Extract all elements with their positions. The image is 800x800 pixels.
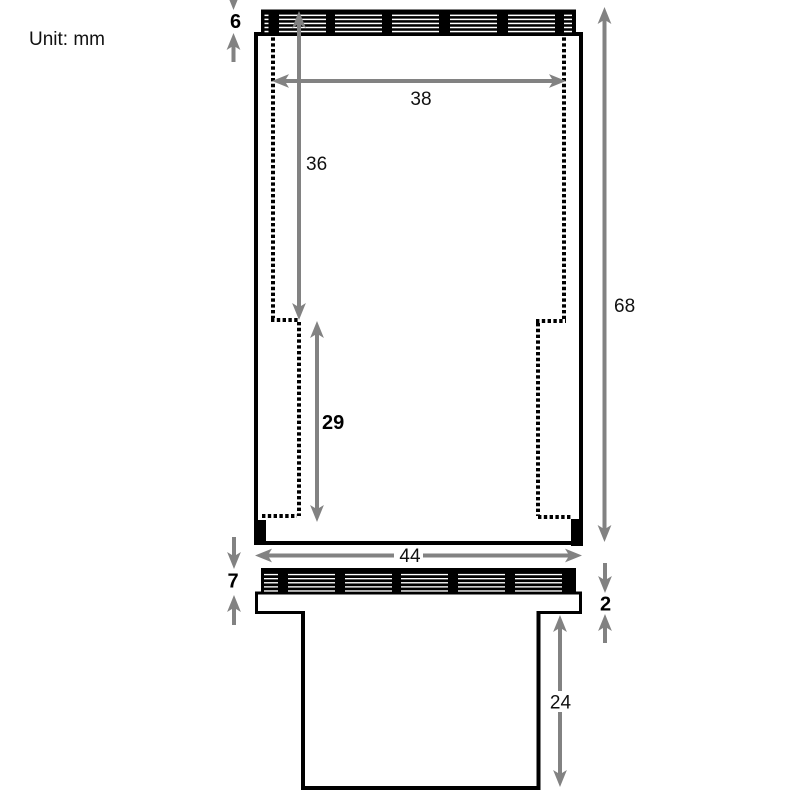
svg-text:6: 6 bbox=[230, 11, 241, 33]
svg-text:29: 29 bbox=[322, 412, 344, 434]
svg-text:Unit: mm: Unit: mm bbox=[29, 29, 105, 50]
svg-text:2: 2 bbox=[600, 594, 611, 616]
svg-text:36: 36 bbox=[306, 154, 327, 175]
svg-text:38: 38 bbox=[410, 89, 431, 110]
svg-text:44: 44 bbox=[399, 546, 421, 567]
svg-text:24: 24 bbox=[550, 693, 572, 714]
svg-text:7: 7 bbox=[227, 571, 238, 593]
svg-text:68: 68 bbox=[614, 296, 635, 317]
